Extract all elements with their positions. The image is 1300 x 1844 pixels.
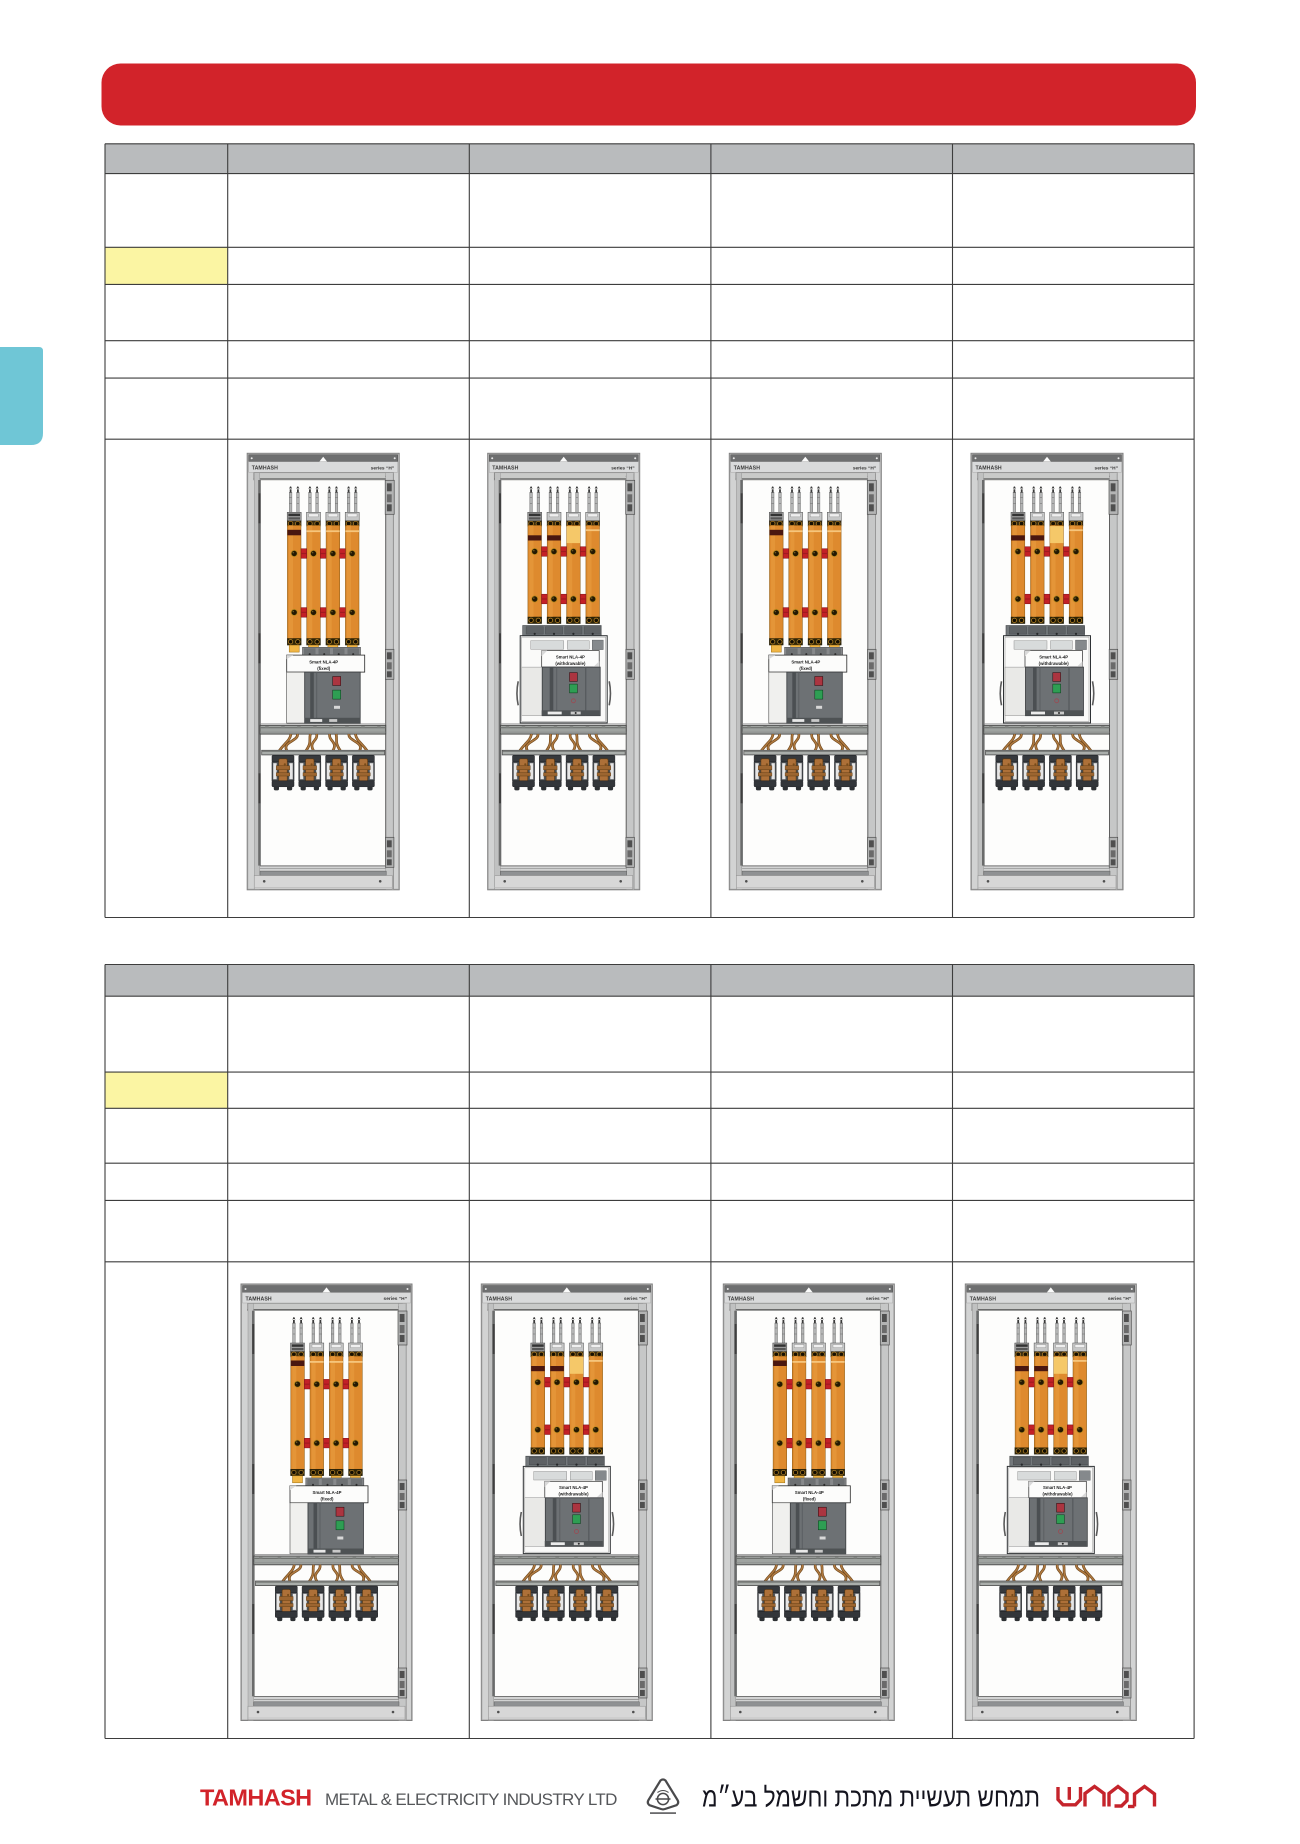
svg-text:Smart NLA-4P: Smart NLA-4P [791, 659, 820, 664]
svg-text:(withdrawable): (withdrawable) [1039, 661, 1070, 666]
svg-text:(fixed): (fixed) [799, 666, 812, 671]
svg-text:(fixed): (fixed) [803, 1497, 816, 1502]
svg-text:series “H”: series “H” [371, 465, 395, 471]
svg-text:(withdrawable): (withdrawable) [555, 661, 586, 666]
svg-text:TAMHASH: TAMHASH [728, 1296, 754, 1302]
svg-text:Smart NLA-4P: Smart NLA-4P [795, 1490, 824, 1495]
svg-text:series “H”: series “H” [866, 1296, 890, 1302]
svg-text:Smart NLA-4P: Smart NLA-4P [1039, 654, 1068, 659]
svg-text:series “H”: series “H” [384, 1296, 408, 1302]
svg-text:TAMHASH: TAMHASH [486, 1296, 512, 1302]
svg-text:תמחש תעשיית מתכת וחשמל בע״מ: תמחש תעשיית מתכת וחשמל בע״מ [702, 1783, 1040, 1813]
svg-text:Smart NLA-4P: Smart NLA-4P [313, 1490, 342, 1495]
svg-text:TAMHASH: TAMHASH [252, 466, 278, 472]
svg-text:series “H”: series “H” [853, 465, 877, 471]
svg-text:Smart NLA-4P: Smart NLA-4P [559, 1485, 588, 1490]
svg-text:TAMHASH: TAMHASH [492, 466, 518, 472]
svg-text:Smart NLA-4P: Smart NLA-4P [309, 659, 338, 664]
svg-text:(withdrawable): (withdrawable) [558, 1492, 589, 1497]
svg-text:(fixed): (fixed) [317, 666, 330, 671]
svg-text:TAMHASH: TAMHASH [976, 466, 1002, 472]
svg-text:TAMHASH: TAMHASH [970, 1296, 996, 1302]
svg-text:series “H”: series “H” [611, 465, 635, 471]
svg-text:TAMHASH: TAMHASH [200, 1785, 312, 1811]
svg-text:(fixed): (fixed) [321, 1497, 334, 1502]
svg-text:series “H”: series “H” [1108, 1296, 1132, 1302]
svg-text:METAL & ELECTRICITY INDUSTRY: METAL & ELECTRICITY INDUSTRY LTD [325, 1790, 618, 1809]
svg-text:TAMHASH: TAMHASH [734, 466, 760, 472]
svg-text:series “H”: series “H” [1095, 465, 1119, 471]
svg-text:Smart NLA-4P: Smart NLA-4P [556, 654, 585, 659]
svg-text:Smart NLA-4P: Smart NLA-4P [1043, 1485, 1072, 1490]
svg-text:series “H”: series “H” [624, 1296, 648, 1302]
svg-text:(withdrawable): (withdrawable) [1042, 1492, 1073, 1497]
svg-text:TAMHASH: TAMHASH [246, 1296, 272, 1302]
